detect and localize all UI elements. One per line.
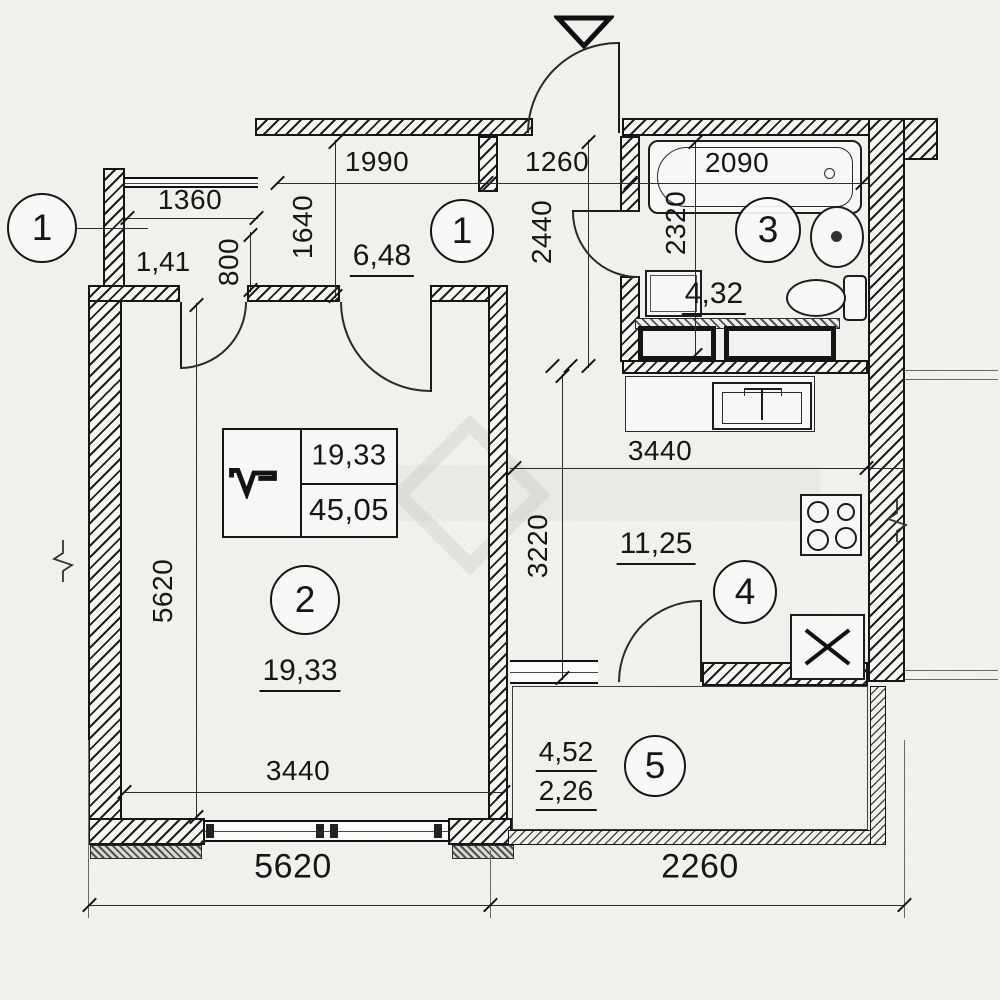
dimension-line (335, 140, 336, 298)
area-niche: 1,41 (133, 246, 194, 280)
neighbour-wall-line (905, 370, 998, 371)
insulation-strip (90, 845, 202, 859)
faucet-icon (744, 388, 782, 390)
cabinet (724, 326, 836, 361)
wall (103, 168, 125, 292)
faucet-icon (761, 388, 763, 420)
callout-number: 2 (295, 579, 316, 621)
room-callout-balcony: 5 (624, 735, 686, 797)
dimension-line (196, 303, 197, 818)
window-kitchen-balcony (510, 660, 598, 684)
cabinet (638, 326, 716, 361)
wash-basin-drain (831, 231, 842, 242)
wall (88, 285, 180, 302)
dim-entry-depth: 2440 (526, 200, 558, 264)
callout-number: 1 (452, 210, 473, 252)
dimension-line (250, 232, 251, 292)
dim-niche-depth: 800 (213, 238, 245, 286)
legend-divider (300, 483, 398, 485)
area-living: 19,33 (259, 654, 340, 692)
dim-bath-depth: 2320 (660, 191, 692, 255)
extension-line (904, 740, 905, 918)
dim-kitchen-width: 3440 (628, 435, 692, 467)
faucet-hook (781, 388, 782, 396)
toilet-tank (843, 275, 867, 321)
wall (448, 818, 512, 845)
developer-logo-icon (228, 465, 278, 499)
watermark-text-ghost (340, 465, 820, 521)
legend-living-area: 19,33 (311, 440, 386, 473)
window-mullion (206, 824, 214, 838)
room-callout-niche: 1 (7, 193, 77, 263)
dim-tick (545, 359, 560, 374)
balcony-parapet (508, 830, 886, 845)
dim-tick (563, 359, 578, 374)
balcony-door-arc (618, 600, 700, 682)
area-kitchen: 11,25 (617, 527, 696, 565)
neighbour-wall-line (905, 379, 998, 380)
balcony-door-leaf (700, 600, 702, 682)
dim-living-depth: 5620 (147, 559, 179, 623)
extension-line (88, 740, 89, 918)
dim-living-width: 3440 (266, 755, 330, 787)
extension-line (490, 850, 491, 918)
window-mullion (316, 824, 324, 838)
dim-overall-right: 2260 (661, 848, 739, 887)
wall (88, 285, 122, 845)
entrance-door-leaf (618, 42, 620, 133)
room-callout-hallway: 1 (430, 199, 494, 263)
wall (255, 118, 533, 136)
stove-burner (837, 503, 855, 521)
legend-total-area: 45,05 (309, 492, 389, 528)
callout-number: 3 (758, 209, 779, 251)
wall (622, 118, 905, 136)
faucet-hook (744, 388, 745, 396)
room-callout-living: 2 (270, 565, 340, 635)
dim-hall-width: 1990 (345, 146, 409, 178)
toilet-bowl (786, 279, 846, 317)
wall (88, 818, 205, 845)
neighbour-wall-line (905, 679, 998, 680)
wall (902, 118, 938, 160)
dimension-line (695, 140, 696, 357)
window-living (205, 820, 448, 842)
stove-burner (807, 501, 829, 523)
dim-entry-width: 1260 (525, 146, 589, 178)
floor-plan: 19,33 45,05 1 1 3 2 4 5 6,48 1,41 4,32 1… (0, 0, 1000, 1000)
living-door-arc (340, 302, 430, 392)
balcony-parapet (870, 686, 886, 845)
window-mullion (330, 824, 338, 838)
dim-overall-left: 5620 (254, 848, 332, 887)
bathroom-door-arc (572, 212, 638, 278)
dimension-line (123, 792, 505, 793)
dimension-line (562, 374, 563, 680)
wall (868, 118, 905, 682)
area-balcony-full: 4,52 (536, 736, 597, 772)
callout-leader (76, 228, 148, 229)
room-callout-bathroom: 3 (735, 197, 801, 263)
callout-number: 5 (645, 745, 666, 787)
room-callout-kitchen: 4 (713, 560, 777, 624)
stove-burner (807, 529, 829, 551)
entrance-door-arc (527, 42, 618, 133)
dim-kitchen-depth: 3220 (522, 514, 554, 578)
dim-hall-depth: 1640 (287, 195, 319, 259)
dimension-line (277, 183, 868, 184)
callout-number: 1 (32, 207, 53, 249)
area-bathroom: 4,32 (682, 277, 746, 315)
dimension-line (510, 468, 905, 469)
dimension-line (125, 218, 258, 219)
area-balcony-counted: 2,26 (536, 775, 597, 811)
wall (488, 285, 508, 845)
stove-burner (835, 527, 857, 549)
wall (247, 285, 340, 302)
living-door-leaf (430, 302, 432, 392)
dim-tub-length: 2090 (705, 147, 769, 179)
dimension-line (88, 905, 905, 906)
insulation-strip (452, 845, 514, 859)
wall (620, 136, 640, 212)
break-mark (52, 540, 74, 582)
dim-niche-width: 1360 (158, 184, 222, 216)
bathtub-drain (824, 168, 835, 179)
callout-number: 4 (735, 571, 756, 613)
break-mark (886, 500, 908, 542)
neighbour-wall-line (905, 670, 998, 671)
area-hallway: 6,48 (350, 239, 414, 277)
wall (622, 360, 868, 374)
window-mullion (434, 824, 442, 838)
